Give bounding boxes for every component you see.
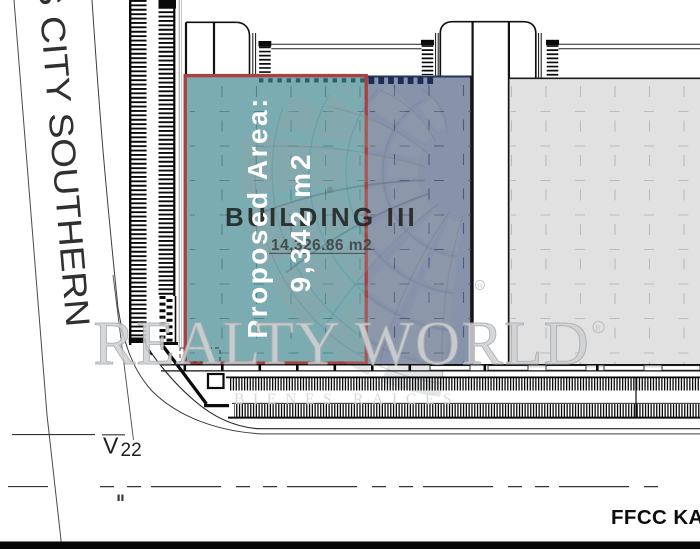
- svg-text:BIENES RAICES: BIENES RAICES: [234, 391, 460, 408]
- svg-text:9,342 m2: 9,342 m2: [285, 152, 316, 293]
- svg-text:R: R: [595, 324, 601, 333]
- svg-text:22: 22: [121, 440, 142, 461]
- svg-text:V: V: [103, 433, 119, 459]
- svg-text:R: R: [478, 283, 483, 290]
- svg-text:REALTY WORLD: REALTY WORLD: [94, 308, 590, 378]
- svg-text:Proposed Area:: Proposed Area:: [242, 96, 273, 338]
- svg-text:FFCC KA: FFCC KA: [611, 506, 700, 529]
